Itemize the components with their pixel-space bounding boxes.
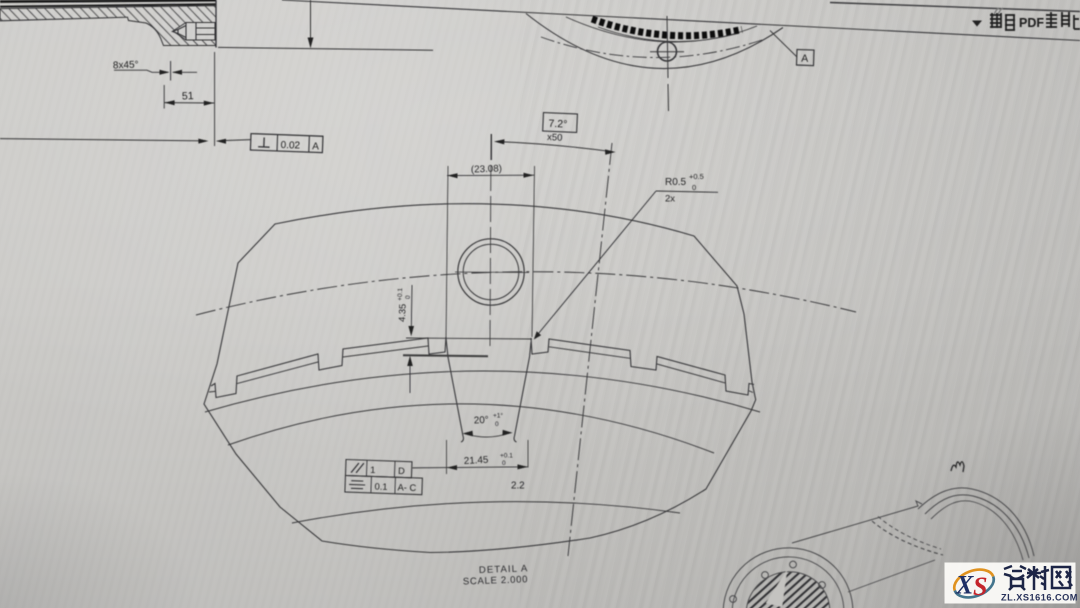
svg-text:+0.1: +0.1	[397, 287, 404, 300]
svg-text:A: A	[801, 53, 808, 65]
svg-text:A: A	[312, 141, 319, 152]
svg-text:X: X	[955, 571, 974, 600]
svg-text:SCALE 2.000: SCALE 2.000	[463, 574, 529, 587]
svg-text:A- C: A- C	[397, 482, 416, 493]
svg-text:+0.5: +0.5	[689, 172, 704, 181]
svg-text:8x45°: 8x45°	[113, 60, 139, 72]
svg-text:21.45: 21.45	[464, 455, 490, 467]
svg-text:20°: 20°	[474, 415, 489, 427]
svg-text:0.1: 0.1	[374, 482, 387, 492]
svg-text:2x: 2x	[665, 194, 675, 205]
svg-text:PDF: PDF	[1019, 16, 1044, 30]
svg-text:+0.1: +0.1	[500, 453, 513, 460]
svg-text:2.2: 2.2	[511, 481, 525, 492]
svg-text:S: S	[973, 572, 987, 601]
svg-text:+1°: +1°	[493, 412, 503, 420]
svg-text:x50: x50	[547, 132, 563, 144]
svg-text:0: 0	[502, 460, 506, 467]
svg-text:0: 0	[692, 183, 696, 192]
svg-text:1: 1	[370, 465, 376, 475]
svg-text:ZL.XS1616.COM: ZL.XS1616.COM	[1001, 593, 1078, 603]
svg-text:R0.5: R0.5	[665, 177, 687, 188]
svg-text:0.02: 0.02	[280, 140, 300, 152]
svg-text:51: 51	[182, 90, 194, 102]
svg-text:0: 0	[405, 295, 412, 299]
svg-text:4.35: 4.35	[397, 304, 408, 322]
svg-text:7.2°: 7.2°	[548, 118, 567, 131]
svg-text:0: 0	[495, 421, 499, 428]
svg-text:(23.08): (23.08)	[471, 163, 502, 175]
svg-text:D: D	[398, 466, 405, 476]
